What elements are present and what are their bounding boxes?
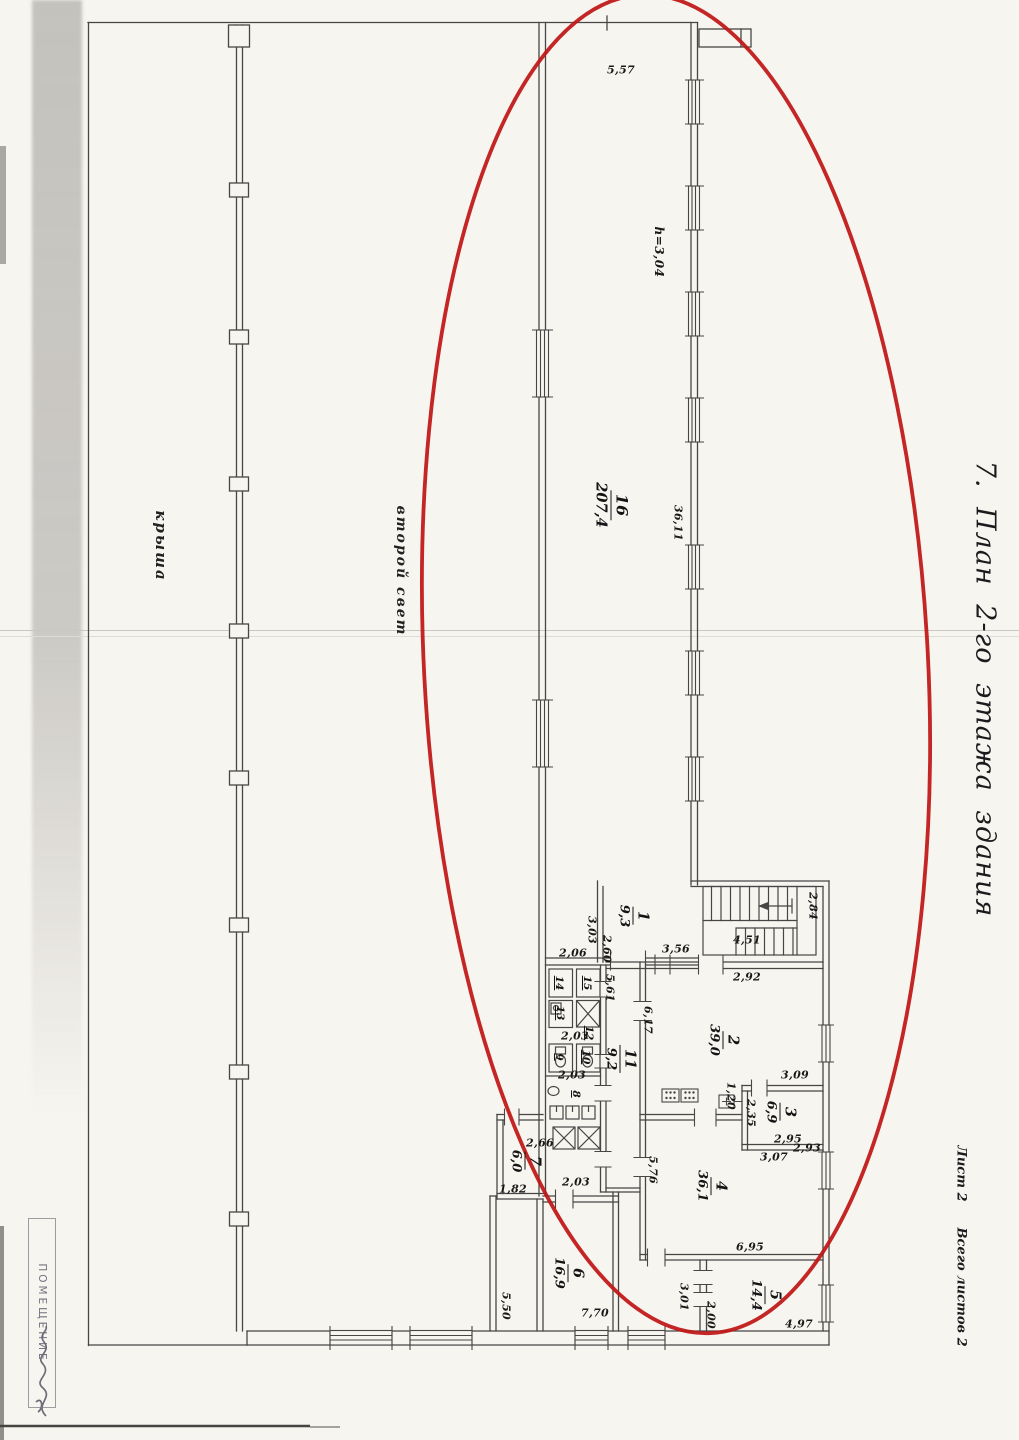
dim-3-03: 3,03 xyxy=(586,916,599,944)
stamp-text: ПОМЕЩЕНИЕ xyxy=(36,1263,48,1362)
floor-plan-drawing xyxy=(0,0,1019,1440)
dim-2-35: 2,35 xyxy=(745,1099,758,1127)
dim-5-57: 5,57 xyxy=(607,64,635,77)
room-label-5: 5 14,4 xyxy=(749,1279,784,1311)
dim-2-84: 2,84 xyxy=(807,892,820,920)
room-label-14: 14 xyxy=(553,976,565,991)
room-label-7: 7 6,0 xyxy=(509,1150,544,1173)
dim-3-01: 3,01 xyxy=(678,1283,691,1311)
dim-2-60: 2,60 xyxy=(601,935,614,963)
roof-label: крыша xyxy=(152,510,170,582)
dim-2-03-c: 2,03 xyxy=(562,1176,590,1189)
dim-2-93: 2,93 xyxy=(793,1142,821,1155)
dim-2-03-b: 2,03 xyxy=(558,1069,586,1082)
dim-5-50: 5,50 xyxy=(500,1292,513,1320)
page-title: 7. План 2-го этажа здания xyxy=(970,461,1001,918)
dim-1-82: 1,82 xyxy=(499,1183,527,1196)
dim-1-20: 1,20 xyxy=(725,1082,738,1110)
dim-4-51: 4,51 xyxy=(733,934,761,947)
walls xyxy=(88,16,829,1346)
dim-3-56: 3,56 xyxy=(662,943,690,956)
dim-2-92: 2,92 xyxy=(733,971,761,984)
dim-36-11: 36,11 xyxy=(672,505,685,541)
sheet-number-label: Лист 2 xyxy=(954,1145,969,1201)
room-label-8: 8 xyxy=(570,1090,582,1097)
hall-windows xyxy=(330,80,834,1350)
shaft-cross xyxy=(578,1127,600,1149)
dim-3-09: 3,09 xyxy=(781,1069,809,1082)
room-label-13: 13 xyxy=(554,1006,566,1021)
red-annotation-ellipse xyxy=(389,0,962,1346)
room-label-2: 2 39,0 xyxy=(707,1024,742,1056)
shaft-cross xyxy=(577,1001,600,1028)
dim-5-76: 5,76 xyxy=(647,1156,660,1184)
urinal-symbol xyxy=(548,1087,559,1096)
room-label-1: 1 9,3 xyxy=(617,905,652,928)
dim-4-97: 4,97 xyxy=(785,1318,813,1331)
room-label-9: 9 xyxy=(553,1053,565,1060)
sheet-total-label: Всего листов 2 xyxy=(954,1228,969,1347)
room-label-16: 16 207,4 xyxy=(593,482,632,527)
shaft-cross xyxy=(553,1127,575,1149)
dim-3-07: 3,07 xyxy=(760,1151,788,1164)
room-label-10: 10 xyxy=(580,1050,592,1065)
ceiling-height-note: h=3,04 xyxy=(652,226,666,277)
scanned-floorplan-page: крыша второй свет h=3,04 16 207,4 1 9,3 … xyxy=(0,0,1019,1440)
room-label-3: 3 6,9 xyxy=(764,1101,799,1124)
sheet-info: Лист 2 Всего листов 2 xyxy=(954,1145,969,1346)
dim-2-06: 2,06 xyxy=(559,947,587,960)
dim-2-66: 2,66 xyxy=(526,1137,554,1150)
stamp-box: ПОМЕЩЕНИЕ xyxy=(28,1218,56,1408)
dim-6-95: 6,95 xyxy=(736,1241,764,1254)
dim-2-00: 2,00 xyxy=(705,1301,718,1329)
second-light-label: второй свет xyxy=(393,506,409,637)
room-label-11: 11 9,2 xyxy=(604,1045,639,1073)
room-label-6: 6 16,9 xyxy=(552,1257,587,1289)
room-label-15: 15 xyxy=(581,976,593,991)
dim-7-70: 7,70 xyxy=(581,1307,609,1320)
dim-6-17: 6,17 xyxy=(642,1006,655,1034)
room-label-4: 4 36,1 xyxy=(695,1170,730,1202)
dim-2-03-a: 2,03 xyxy=(561,1030,589,1043)
dim-5-61: 5,61 xyxy=(604,974,617,1002)
